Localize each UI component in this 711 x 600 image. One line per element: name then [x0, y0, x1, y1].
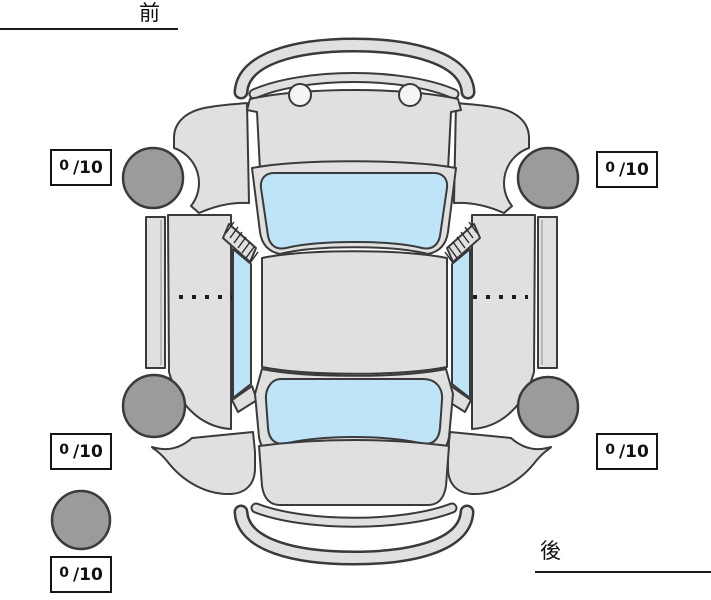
- score-max: /10: [619, 160, 649, 180]
- fender-front-right: [454, 103, 529, 213]
- tire-rear-left: [123, 375, 185, 437]
- score-value: 0: [59, 565, 69, 581]
- score-box-rear-right: 0 /10: [596, 433, 658, 470]
- score-value: 0: [59, 442, 69, 458]
- front-underline: [0, 28, 178, 30]
- score-max: /10: [619, 442, 649, 462]
- score-max: /10: [73, 565, 103, 585]
- score-max: /10: [73, 442, 103, 462]
- trunk-panel: [259, 440, 449, 505]
- side-window-left: [233, 249, 251, 398]
- tire-rear-right: [518, 377, 578, 437]
- fender-front-left: [174, 103, 249, 213]
- roof-panel: [262, 251, 447, 374]
- score-value: 0: [605, 442, 615, 458]
- front-label: 前: [139, 3, 160, 24]
- score-value: 0: [605, 160, 615, 176]
- tire-front-left: [123, 148, 183, 208]
- car-diagram-svg: [0, 0, 711, 600]
- tire-condition-diagram: 前 後 0 /10 0 /10 0 /10 0 /10 0 /10: [0, 0, 711, 600]
- score-box-front-right: 0 /10: [596, 151, 658, 188]
- rear-label: 後: [540, 541, 561, 562]
- score-box-front-left: 0 /10: [50, 149, 112, 186]
- sill-panel-left: [146, 217, 165, 368]
- side-window-right: [452, 249, 470, 398]
- rear-window-glass: [266, 379, 442, 444]
- quarter-panel-rear-left: [152, 432, 255, 494]
- score-value: 0: [59, 158, 69, 174]
- score-max: /10: [73, 158, 103, 178]
- tire-spare: [52, 491, 110, 549]
- hood-panel: [247, 90, 461, 170]
- headlight-right: [399, 84, 421, 106]
- score-box-spare: 0 /10: [50, 556, 112, 593]
- sill-panel-right: [538, 217, 557, 368]
- score-box-rear-left: 0 /10: [50, 433, 112, 470]
- tire-front-right: [518, 148, 578, 208]
- rear-underline: [535, 571, 711, 573]
- windshield-glass: [261, 173, 447, 249]
- headlight-left: [289, 84, 311, 106]
- quarter-panel-rear-right: [448, 432, 551, 494]
